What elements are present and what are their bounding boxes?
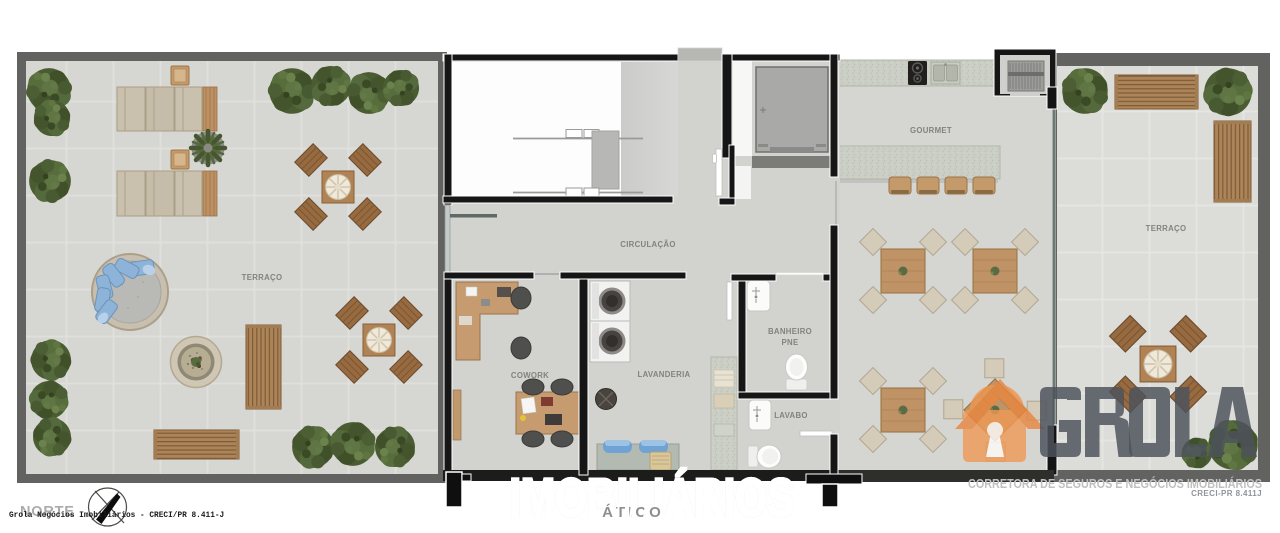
svg-text:BANHEIRO: BANHEIRO xyxy=(768,327,812,336)
svg-text:PNE: PNE xyxy=(782,338,799,347)
svg-text:LAVABO: LAVABO xyxy=(774,411,808,420)
svg-text:COWORK: COWORK xyxy=(511,371,549,380)
svg-text:Grola Negócios Imobiliários -: Grola Negócios Imobiliários - CRECI/PR 8… xyxy=(9,512,224,520)
svg-text:GOURMET: GOURMET xyxy=(910,126,952,135)
svg-text:TERRAÇO: TERRAÇO xyxy=(242,273,283,282)
svg-text:ÁTICO: ÁTICO xyxy=(602,504,664,521)
svg-text:TERRAÇO: TERRAÇO xyxy=(1146,224,1187,233)
svg-text:LAVANDERIA: LAVANDERIA xyxy=(638,370,691,379)
svg-text:CIRCULAÇÃO: CIRCULAÇÃO xyxy=(620,240,675,249)
svg-text:CRECI-PR 8.411J: CRECI-PR 8.411J xyxy=(1191,489,1262,498)
